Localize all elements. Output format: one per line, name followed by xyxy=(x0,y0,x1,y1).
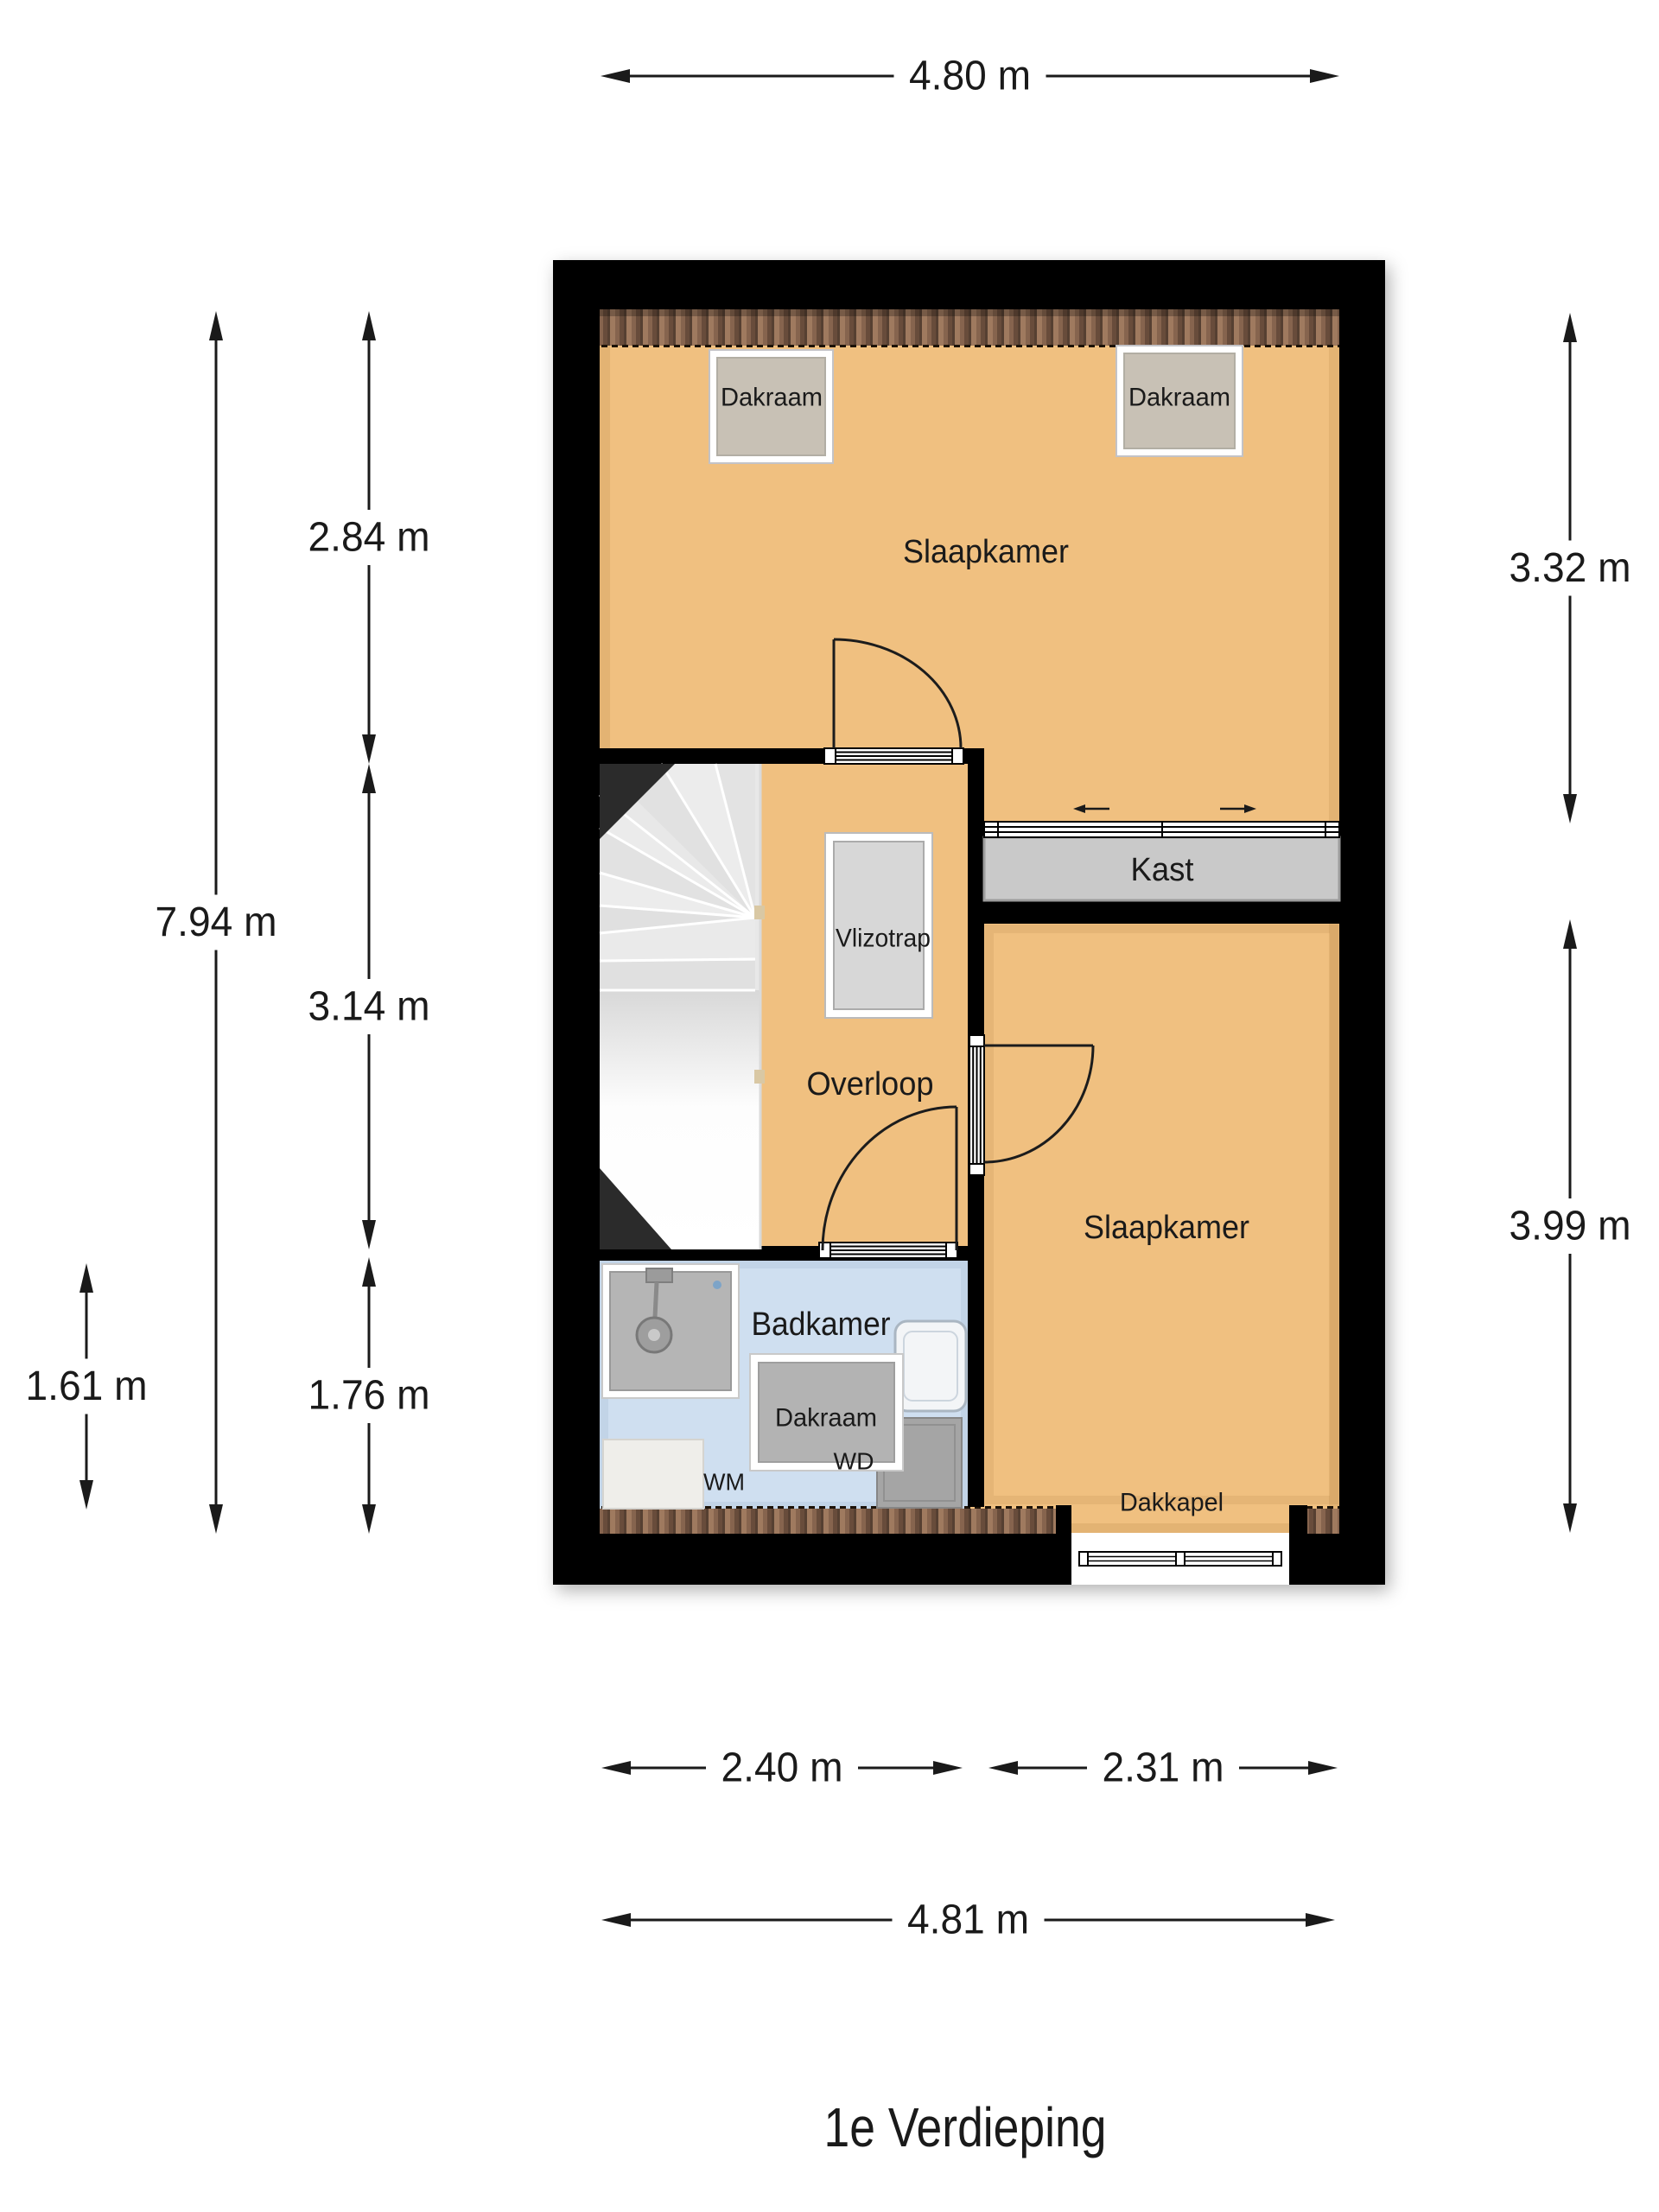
svg-text:Badkamer: Badkamer xyxy=(752,1306,891,1343)
svg-text:3.14 m: 3.14 m xyxy=(308,984,430,1030)
svg-text:WD: WD xyxy=(834,1448,874,1475)
svg-text:Dakraam: Dakraam xyxy=(775,1404,877,1433)
svg-text:Dakkapel: Dakkapel xyxy=(1120,1489,1224,1517)
svg-text:Vlizotrap: Vlizotrap xyxy=(836,925,931,953)
svg-text:WM: WM xyxy=(703,1469,745,1496)
svg-text:3.32 m: 3.32 m xyxy=(1510,545,1631,591)
svg-text:1e Verdieping: 1e Verdieping xyxy=(824,2096,1107,2158)
svg-text:Overloop: Overloop xyxy=(807,1066,934,1103)
svg-text:2.40 m: 2.40 m xyxy=(721,1745,843,1791)
svg-text:2.84 m: 2.84 m xyxy=(308,515,430,561)
svg-text:Slaapkamer: Slaapkamer xyxy=(1084,1210,1249,1246)
svg-text:7.94 m: 7.94 m xyxy=(156,899,277,945)
svg-text:Dakraam: Dakraam xyxy=(1128,384,1230,412)
svg-text:1.76 m: 1.76 m xyxy=(308,1373,430,1419)
svg-text:4.80 m: 4.80 m xyxy=(909,54,1031,99)
svg-text:Slaapkamer: Slaapkamer xyxy=(903,534,1069,570)
svg-text:Dakraam: Dakraam xyxy=(721,384,823,412)
svg-text:Kast: Kast xyxy=(1131,852,1194,888)
svg-text:3.99 m: 3.99 m xyxy=(1510,1204,1631,1249)
svg-text:2.31 m: 2.31 m xyxy=(1103,1745,1224,1791)
svg-text:1.61 m: 1.61 m xyxy=(26,1363,148,1409)
svg-text:4.81 m: 4.81 m xyxy=(907,1897,1029,1943)
